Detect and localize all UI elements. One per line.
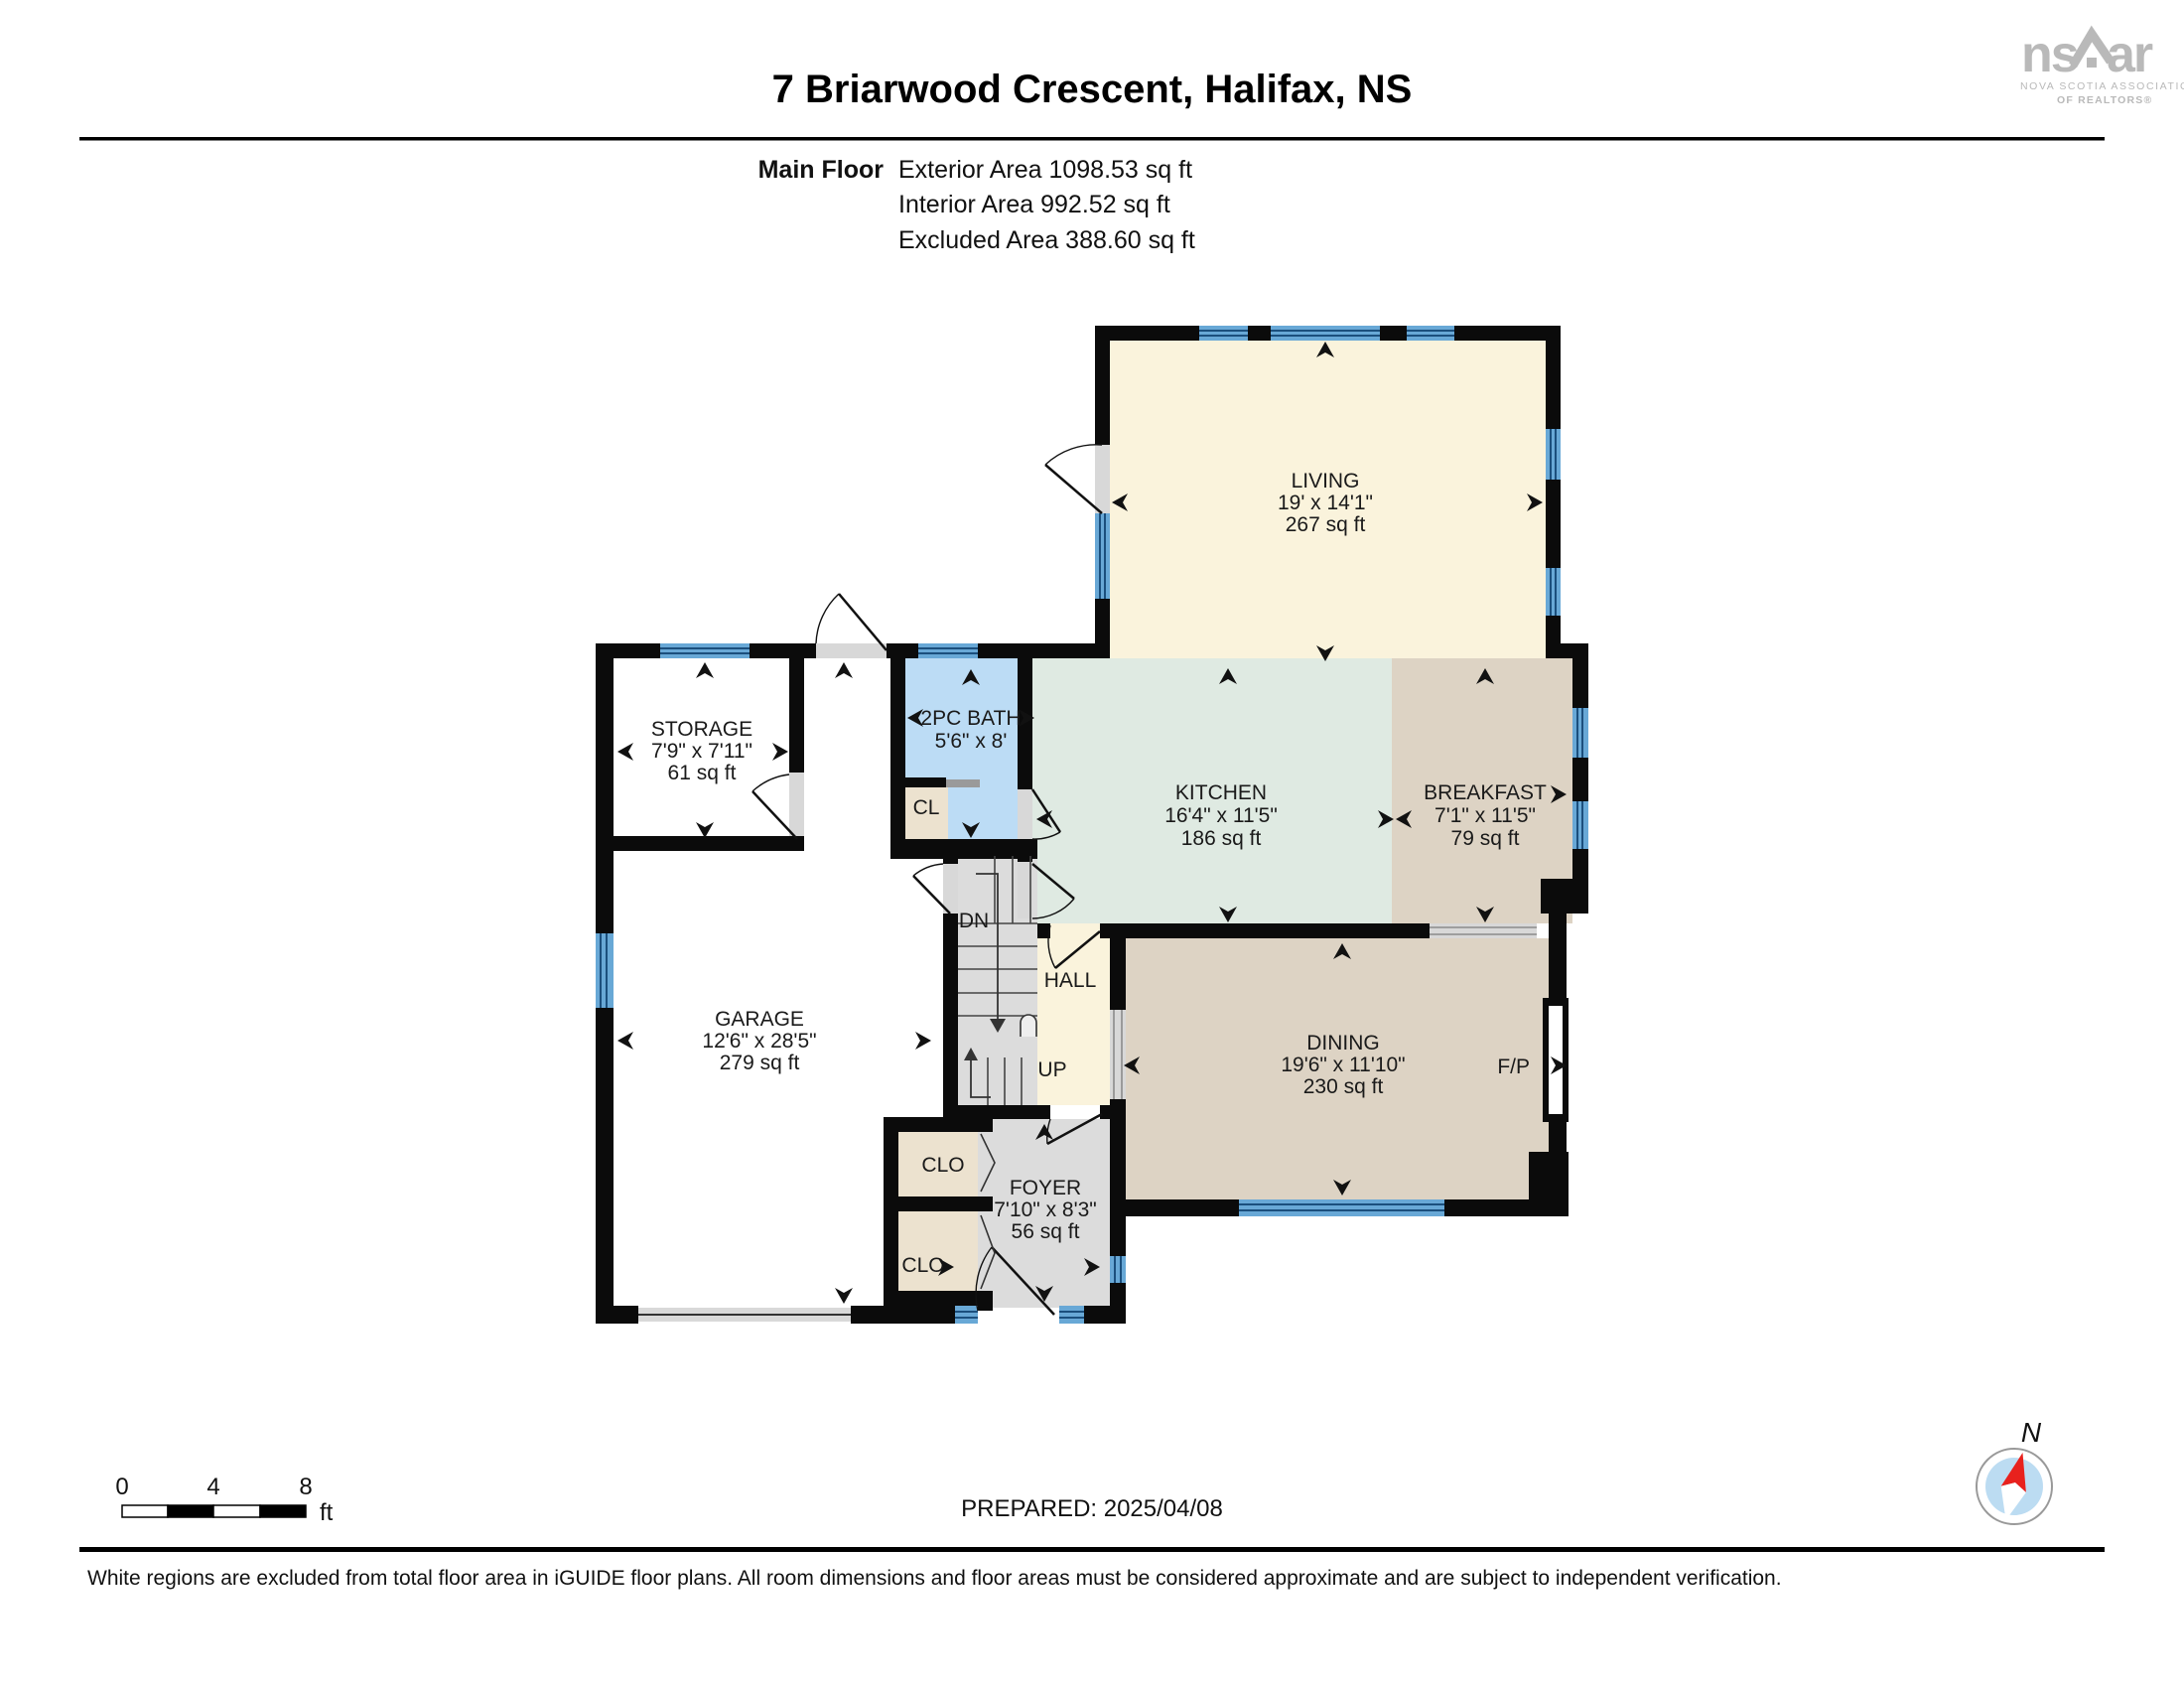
up-label: UP <box>1037 1058 1066 1081</box>
bath-dims: 5'6" x 8' <box>935 730 1008 753</box>
scale-unit: ft <box>320 1499 334 1526</box>
side-entry-door-gap <box>816 643 887 658</box>
page-title: 7 Briarwood Crescent, Halifax, NS <box>772 68 1413 111</box>
window <box>1199 326 1248 341</box>
fireplace-label: F/P <box>1497 1055 1530 1078</box>
scale-tick-0: 0 <box>115 1474 128 1500</box>
excluded-area: Excluded Area 388.60 sq ft <box>898 226 1195 254</box>
dimension-arrow-icon <box>696 822 714 838</box>
storage-door-gap <box>789 773 804 839</box>
prepared-date: PREPARED: 2025/04/08 <box>961 1495 1223 1522</box>
garage-name: GARAGE <box>715 1008 804 1031</box>
clo-lower-label: CLO <box>901 1254 944 1277</box>
window <box>1546 568 1561 616</box>
foyer-name: FOYER <box>1010 1177 1081 1199</box>
disclaimer-text: White regions are excluded from total fl… <box>87 1567 1782 1590</box>
dn-label: DN <box>959 910 989 932</box>
bath-counter <box>946 779 980 787</box>
stair-garage-door-gap <box>943 864 958 914</box>
window <box>1572 708 1588 758</box>
dining-dims: 19'6" x 11'10" <box>1281 1054 1405 1076</box>
scale-bar: 0 4 8 ft <box>115 1474 333 1526</box>
interior-area: Interior Area 992.52 sq ft <box>898 191 1170 218</box>
window <box>918 643 978 658</box>
window <box>1239 1199 1444 1216</box>
exterior-area: Exterior Area 1098.53 sq ft <box>898 156 1192 184</box>
foyer-dims: 7'10" x 8'3" <box>994 1198 1097 1221</box>
bath-floor-lower <box>948 779 1018 841</box>
dimension-arrow-icon <box>915 1032 931 1050</box>
nsar-logo: ns ar NOVA SCOTIA ASSOCIATION OF REALTOR… <box>2020 26 2184 106</box>
dimension-arrow-icon <box>835 1288 853 1304</box>
door-swing <box>1045 445 1102 513</box>
floor-label: Main Floor <box>758 156 885 184</box>
window <box>1059 1306 1084 1324</box>
dimension-arrow-icon <box>617 1032 633 1050</box>
kitchen-name: KITCHEN <box>1175 781 1267 804</box>
compass: N <box>1977 1417 2052 1524</box>
stair-newel <box>1021 1015 1036 1037</box>
garage-dims: 12'6" x 28'5" <box>702 1030 816 1053</box>
window <box>1271 326 1380 341</box>
door-swing <box>816 594 887 650</box>
footer-divider <box>79 1547 2105 1552</box>
garage-area: 279 sq ft <box>720 1052 800 1074</box>
storage-dims: 7'9" x 7'11" <box>651 740 752 763</box>
living-dims: 19' x 14'1" <box>1278 492 1373 514</box>
floorplan-page: 7 Briarwood Crescent, Halifax, NS Main F… <box>0 0 2184 1688</box>
floorplan-canvas: 7 Briarwood Crescent, Halifax, NS Main F… <box>0 0 2184 1688</box>
scale-tick-8: 8 <box>299 1474 312 1500</box>
window <box>1407 326 1454 341</box>
clo-upper-label: CLO <box>921 1154 964 1177</box>
kitchen-area: 186 sq ft <box>1181 827 1262 850</box>
window <box>955 1306 978 1324</box>
logo-ns-text: ns <box>2021 26 2078 83</box>
living-name: LIVING <box>1292 470 1360 492</box>
logo-ar-text: ar <box>2107 26 2153 83</box>
storage-name: STORAGE <box>651 718 752 741</box>
cl-label: CL <box>913 796 940 819</box>
logo-subtitle-1: NOVA SCOTIA ASSOCIATION <box>2020 80 2184 92</box>
foyer-area: 56 sq ft <box>1012 1220 1080 1243</box>
compass-north-label: N <box>2021 1417 2042 1448</box>
scale-tick-4: 4 <box>206 1474 219 1500</box>
breakfast-dining-opening <box>1430 923 1537 938</box>
living-patio-door-gap <box>1095 445 1110 513</box>
dining-name: DINING <box>1306 1032 1380 1055</box>
window <box>1572 801 1588 849</box>
window <box>1095 513 1110 599</box>
living-area: 267 sq ft <box>1286 513 1366 536</box>
window <box>1110 1256 1126 1283</box>
breakfast-dims: 7'1" x 11'5" <box>1434 804 1536 827</box>
logo-house-door-icon <box>2087 58 2097 68</box>
window <box>596 933 614 1008</box>
hall-dining-opening <box>1110 1010 1126 1099</box>
dimension-arrow-icon <box>772 743 788 761</box>
kitchen-dims: 16'4" x 11'5" <box>1164 804 1278 827</box>
hall-label: HALL <box>1044 969 1097 992</box>
bath-door-gap <box>1018 789 1032 839</box>
dining-area: 230 sq ft <box>1303 1075 1384 1098</box>
header-divider <box>79 137 2105 141</box>
window <box>1546 429 1561 480</box>
breakfast-name: BREAKFAST <box>1424 781 1547 804</box>
breakfast-area: 79 sq ft <box>1451 827 1520 850</box>
logo-subtitle-2: OF REALTORS® <box>2057 94 2152 106</box>
bath-name: 2PC BATH <box>920 707 1021 730</box>
dimension-arrow-icon <box>696 662 714 678</box>
dimension-arrow-icon <box>617 743 633 761</box>
storage-area: 61 sq ft <box>668 762 737 784</box>
dimension-arrow-icon <box>835 662 853 678</box>
window <box>660 643 750 658</box>
